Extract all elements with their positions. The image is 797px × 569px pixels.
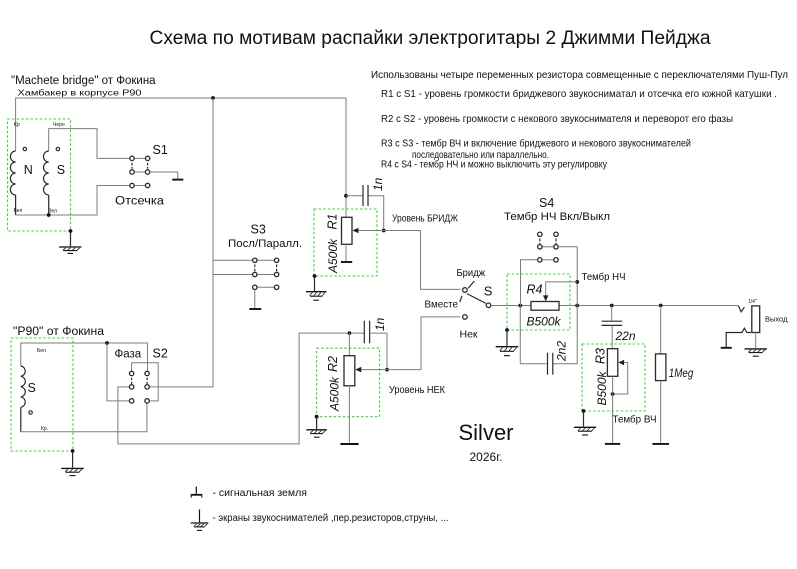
svg-text:S: S [57,163,65,177]
svg-text:Уровень НЕК: Уровень НЕК [389,384,446,396]
svg-text:S1: S1 [153,143,168,157]
svg-text:A500k: A500k [328,376,342,412]
svg-text:Нек: Нек [460,329,478,341]
svg-text:Отсечка: Отсечка [115,196,165,208]
svg-text:Использованы четыре переменных: Использованы четыре переменных резистора… [371,69,788,81]
svg-text:- экраны звукоснимателей ,пер.: - экраны звукоснимателей ,пер.резисторов… [213,512,449,524]
svg-text:Хамбакер в корпусе Р90: Хамбакер в корпусе Р90 [18,88,142,98]
svg-text:1Meg: 1Meg [669,366,694,380]
svg-text:Зел: Зел [49,209,58,215]
svg-text:1n: 1n [371,177,385,191]
svg-text:Вместе: Вместе [425,299,459,311]
svg-text:R3 с S3 - тембр ВЧ и включение: R3 с S3 - тембр ВЧ и включение бриджевог… [381,138,691,150]
svg-text:1n: 1n [373,317,387,331]
svg-text:Бел: Бел [14,208,23,214]
svg-text:"Р90" от Фокина: "Р90" от Фокина [13,326,105,338]
svg-text:2026г.: 2026г. [470,450,503,464]
svg-text:Уровень БРИДЖ: Уровень БРИДЖ [392,214,458,225]
svg-text:1/4": 1/4" [748,299,757,305]
svg-text:Посл/Паралл.: Посл/Паралл. [228,238,302,250]
svg-text:Выход: Выход [765,315,788,324]
svg-text:S3: S3 [251,223,266,237]
svg-text:B500k: B500k [595,370,609,405]
svg-text:Кр.: Кр. [41,426,48,432]
svg-text:Тембр ВЧ: Тембр ВЧ [613,414,657,426]
svg-text:"Machete bridge" от Фокина: "Machete bridge" от Фокина [11,75,156,87]
svg-text:S4: S4 [539,196,554,210]
svg-text:A500k: A500k [326,238,340,274]
svg-text:R4: R4 [527,283,543,297]
svg-text:2n2: 2n2 [555,341,569,362]
svg-text:S: S [28,381,36,395]
svg-text:R2: R2 [326,356,340,372]
svg-text:Бел: Бел [37,348,46,354]
svg-text:Тембр НЧ: Тембр НЧ [582,271,626,283]
svg-text:Схема по мотивам распайки элек: Схема по мотивам распайки электрогитары … [150,28,711,49]
svg-text:R3: R3 [594,348,608,364]
svg-text:N: N [24,163,33,177]
svg-text:- сигнальная земля: - сигнальная земля [213,487,307,499]
svg-text:S2: S2 [153,347,168,361]
svg-text:Черн: Черн [53,122,65,128]
svg-text:22n: 22n [615,329,636,343]
svg-text:R1 с S1 - уровень громкости бр: R1 с S1 - уровень громкости бриджевого з… [381,88,777,100]
svg-text:Фаза: Фаза [115,349,142,361]
svg-text:Silver: Silver [459,420,514,445]
svg-text:R2 с S2 - уровень громкости с: R2 с S2 - уровень громкости с некового з… [381,113,733,125]
svg-text:Кр: Кр [14,122,20,128]
svg-text:Бридж: Бридж [457,267,486,279]
svg-text:R4 с S4 - тембр НЧ и можно вы: R4 с S4 - тембр НЧ и можно выключить эту… [381,159,608,171]
svg-text:S: S [484,283,493,298]
svg-text:Тембр НЧ Вкл/Выкл: Тембр НЧ Вкл/Выкл [504,211,610,223]
svg-text:R1: R1 [326,214,340,230]
svg-text:B500k: B500k [527,315,562,329]
